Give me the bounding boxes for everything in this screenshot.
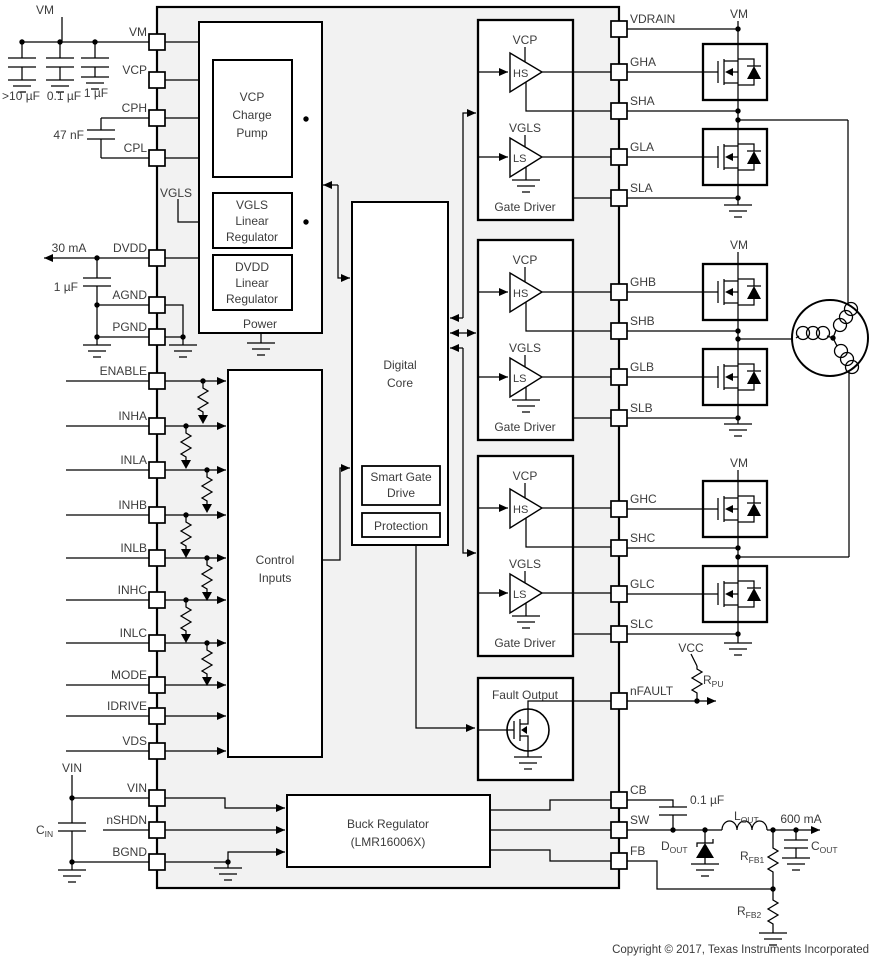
pin-label-shc: SHC [630,531,656,545]
pin-label-slb: SLB [630,401,653,415]
pin-gla [611,149,627,165]
pin-label-vin: VIN [127,781,147,795]
svg-text:HS: HS [513,288,528,300]
pin-ghb [611,284,627,300]
svg-text:Regulator: Regulator [226,292,278,306]
pin-label-ghc: GHC [630,492,657,506]
pin-label-cpl: CPL [124,141,148,155]
pin-fb [611,853,627,869]
pin-ghc [611,501,627,517]
pin-vm [149,34,165,50]
svg-text:Gate Driver: Gate Driver [494,200,555,214]
pin-label-fb: FB [630,844,645,858]
cb-cap-label: 0.1 µF [690,793,724,807]
svg-text:VGLS: VGLS [509,341,541,355]
pin-agnd [149,297,165,313]
svg-text:VGLS: VGLS [509,557,541,571]
pin-label-vds: VDS [122,734,147,748]
svg-text:Pump: Pump [236,126,268,140]
dout-label: DOUT [661,839,688,855]
svg-text:VCP: VCP [513,469,538,483]
pin-label-shb: SHB [630,314,655,328]
vm-b-label: VM [730,238,748,252]
pin-dvdd [149,250,165,266]
pin-sw [611,822,627,838]
svg-text:VGLS: VGLS [236,198,268,212]
vin-rail-label: VIN [62,761,82,775]
pin-label-inla: INLA [120,453,147,467]
pin-label-sha: SHA [630,94,655,108]
control-inputs-block: Control Inputs [228,370,322,757]
svg-text:DVDD: DVDD [235,260,269,274]
vcp-cap-label: 1 µF [84,86,108,100]
pin-label-idrive: IDRIVE [107,699,147,713]
pin-label-dvdd: DVDD [113,241,147,255]
svg-text:LS: LS [513,373,526,385]
pin-cph [149,110,165,126]
pin-label-ghb: GHB [630,275,656,289]
svg-text:LS: LS [513,153,526,165]
pin-vdrain [611,21,627,37]
svg-text:Digital: Digital [383,358,416,372]
pin-label-vdrain: VDRAIN [630,12,675,26]
vgls-node-label: VGLS [160,186,192,200]
pin-vcp [149,72,165,88]
charge-pump-label: VCP [240,90,265,104]
pin-label-vcp: VCP [122,63,147,77]
pin-inlc [149,635,165,651]
svg-text:Fault Output: Fault Output [492,688,559,702]
pin-label-glb: GLB [630,360,654,374]
pin-nshdn [149,822,165,838]
svg-text:HS: HS [513,504,528,516]
vcc-label: VCC [678,641,704,655]
rfb1-label: RFB1 [740,849,765,865]
pin-label-cph: CPH [122,101,147,115]
svg-text:Gate Driver: Gate Driver [494,420,555,434]
flying-cap-label: 47 nF [53,128,84,142]
pin-label-sw: SW [630,813,650,827]
pin-sha [611,103,627,119]
pin-inlb [149,550,165,566]
pin-inla [149,462,165,478]
pin-nfault [611,693,627,709]
external-fets [703,44,767,622]
svg-text:Protection: Protection [374,519,428,533]
pin-glb [611,369,627,385]
pin-shc [611,540,627,556]
pin-label-mode: MODE [111,668,147,682]
svg-text:Buck Regulator: Buck Regulator [347,817,429,831]
pin-label-pgnd: PGND [112,320,147,334]
dvdd-current-label: 30 mA [52,241,87,255]
pin-label-gla: GLA [630,140,654,154]
pin-label-nshdn: nSHDN [106,813,147,827]
buck-regulator-block: Buck Regulator (LMR16006X) [287,795,490,867]
svg-text:Regulator: Regulator [226,230,278,244]
pin-vds [149,743,165,759]
power-block: VCP Charge Pump VGLS Linear Regulator DV… [199,22,322,333]
power-label: Power [243,317,277,331]
pin-bgnd [149,854,165,870]
pin-label-sla: SLA [630,181,653,195]
pin-label-cb: CB [630,783,647,797]
vm-c-label: VM [730,456,748,470]
rpu-label: RPU [703,673,723,689]
cin-label: CIN [36,823,53,839]
digital-core-block: Digital Core Smart Gate Drive Protection [352,202,448,545]
pin-slb [611,410,627,426]
pin-label-enable: ENABLE [100,364,147,378]
svg-text:Inputs: Inputs [259,571,292,585]
dout-diode [696,843,714,858]
pin-label-agnd: AGND [112,288,147,302]
bulk-cap-label: >10 µF [2,89,40,103]
pin-label-inhb: INHB [118,498,147,512]
pin-inha [149,418,165,434]
vm-a-label: VM [730,7,748,21]
copyright-notice: Copyright © 2017, Texas Instruments Inco… [612,944,869,956]
pin-label-inha: INHA [118,409,147,423]
pin-label-inhc: INHC [118,583,148,597]
pin-cb [611,792,627,808]
pin-shb [611,323,627,339]
pin-label-inlb: INLB [120,541,147,555]
pin-idrive [149,708,165,724]
pin-label-bgnd: BGND [112,845,147,859]
pin-label-glc: GLC [630,577,655,591]
bypass-cap-label: 0.1 µF [47,89,81,103]
svg-text:Linear: Linear [235,214,268,228]
pin-sla [611,190,627,206]
pin-glc [611,586,627,602]
pin-mode [149,677,165,693]
svg-text:(LMR16006X): (LMR16006X) [351,835,426,849]
svg-text:HS: HS [513,68,528,80]
svg-text:Linear: Linear [235,276,268,290]
pin-enable [149,373,165,389]
pin-inhc [149,592,165,608]
cout-label: COUT [811,839,838,855]
svg-text:Gate Driver: Gate Driver [494,636,555,650]
svg-text:Smart Gate: Smart Gate [370,470,432,484]
pin-gha [611,64,627,80]
svg-text:VGLS: VGLS [509,121,541,135]
svg-text:Drive: Drive [387,486,415,500]
svg-text:LS: LS [513,589,526,601]
pin-pgnd [149,329,165,345]
svg-text:VCP: VCP [513,253,538,267]
dvdd-cap-label: 1 µF [54,280,78,294]
svg-text:Core: Core [387,376,413,390]
svg-text:Charge: Charge [232,108,272,122]
rfb2-label: RFB2 [737,904,762,920]
functional-block-diagram: VCP Charge Pump VGLS Linear Regulator DV… [0,0,871,962]
vm-rail-label: VM [36,3,54,17]
iout-label: 600 mA [780,812,821,826]
svg-text:VCP: VCP [513,33,538,47]
pin-slc [611,626,627,642]
pin-label-slc: SLC [630,617,654,631]
pin-label-nfault: nFAULT [630,684,674,698]
svg-text:Control: Control [256,553,295,567]
motor-icon [792,300,868,376]
pin-vin [149,790,165,806]
pin-label-vm: VM [129,25,147,39]
pin-label-gha: GHA [630,55,656,69]
pin-inhb [149,507,165,523]
pin-cpl [149,150,165,166]
lout-label: LOUT [734,809,759,825]
pin-label-inlc: INLC [120,626,148,640]
